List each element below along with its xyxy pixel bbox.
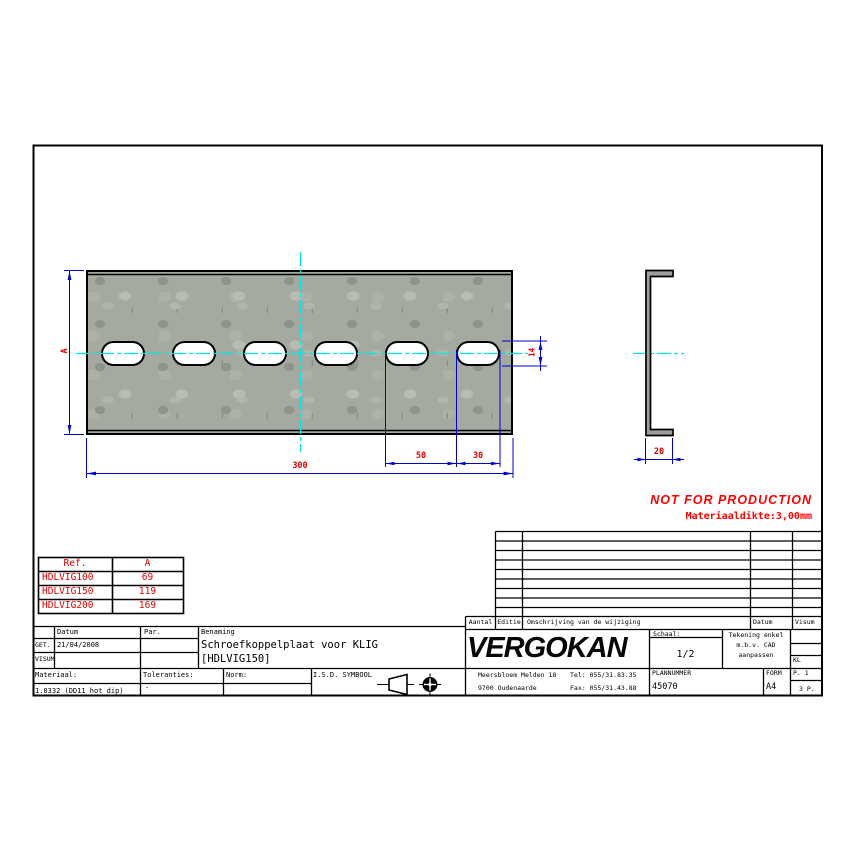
cad-note-line2: m.b.v. CAD	[722, 642, 790, 649]
page-ref: P. 1	[793, 670, 809, 677]
drawing-title-ref: [HDLVIG150]	[201, 653, 271, 665]
address-line2: 9700 Oudenaarde	[478, 685, 537, 692]
ref-table-cell: HDLVIG150	[42, 587, 93, 598]
dim-label-50: 50	[406, 452, 436, 462]
ref-table-header-a: A	[112, 559, 183, 570]
address-line1: Meersbloem Melden 18	[478, 672, 556, 679]
plannummer-label: PLANNUMMER	[652, 670, 691, 677]
drawing-title: Schroefkoppelplaat voor KLIG	[201, 639, 378, 651]
vergokan-logo: VERGOKAN	[467, 628, 649, 668]
form-label: FORM	[766, 670, 782, 677]
toleranties-value: -	[145, 684, 149, 692]
fax-value: Fax: 055/31.43.88	[570, 685, 637, 692]
isd-symbool-label: I.S.D. SYMBOOL	[313, 671, 372, 679]
materiaal-value: 1.0332 (DD11 hot dip)	[35, 687, 124, 695]
dim-label-30: 30	[463, 452, 493, 462]
drawing-sheet: A 300 50 30 14 20 NOT FOR PRODUCTION Mat…	[0, 0, 842, 842]
schaal-value: 1/2	[649, 649, 722, 661]
drawing-linework	[0, 0, 842, 842]
materiaal-label: Materiaal:	[35, 671, 77, 679]
ref-table-cell: 169	[112, 601, 183, 612]
revision-header-visum: Visum	[795, 619, 815, 626]
visum-label: VISUM	[35, 656, 55, 663]
dimension-arrows	[68, 271, 681, 475]
norm-label: Norm:	[226, 671, 247, 679]
date-value: 21/04/2008	[57, 641, 99, 649]
page-count: 3 P.	[799, 686, 815, 693]
revision-header-editie: Editie	[496, 619, 522, 626]
get-label: GET.	[35, 642, 51, 649]
plannummer-value: 45070	[652, 683, 678, 693]
material-thickness-note: Materiaaldikte:3,00mm	[600, 511, 812, 523]
cad-note-line1: Tekening enkel	[722, 632, 790, 639]
dim-label-a: A	[61, 344, 71, 358]
crosshair-symbol-icon	[419, 674, 441, 696]
kl-label: KL	[793, 657, 801, 664]
not-for-production-warning: NOT FOR PRODUCTION	[600, 493, 812, 507]
form-value: A4	[766, 683, 776, 693]
ref-table-cell: 119	[112, 587, 183, 598]
dimension-lines	[64, 271, 684, 479]
datum-column-label: Datum	[57, 628, 78, 636]
cad-note-line3: aanpassen	[722, 652, 790, 659]
toleranties-label: Toleranties:	[143, 671, 194, 679]
ref-table-cell: HDLVIG200	[42, 601, 93, 612]
plate-edge-lines	[87, 275, 512, 431]
revision-header-aantal: Aantal	[466, 619, 495, 626]
ref-table-header-ref: Ref.	[38, 559, 112, 570]
par-column-label: Par.	[144, 628, 161, 636]
dip-symbol-icon	[377, 675, 414, 695]
revision-header-omschrijving: Omschrijving van de wijziging	[527, 619, 641, 626]
schaal-label: Schaal:	[653, 631, 680, 638]
dim-label-300: 300	[270, 462, 330, 472]
centerlines	[76, 252, 684, 452]
benaming-label: Benaming	[201, 628, 235, 636]
ref-table-cell: 69	[112, 573, 183, 584]
revision-header-datum: Datum	[753, 619, 773, 626]
tel-value: Tel: 055/31.83.35	[570, 672, 637, 679]
ref-table-cell: HDLVIG100	[42, 573, 93, 584]
dim-label-20: 20	[645, 448, 673, 458]
dim-label-14: 14	[529, 344, 538, 360]
